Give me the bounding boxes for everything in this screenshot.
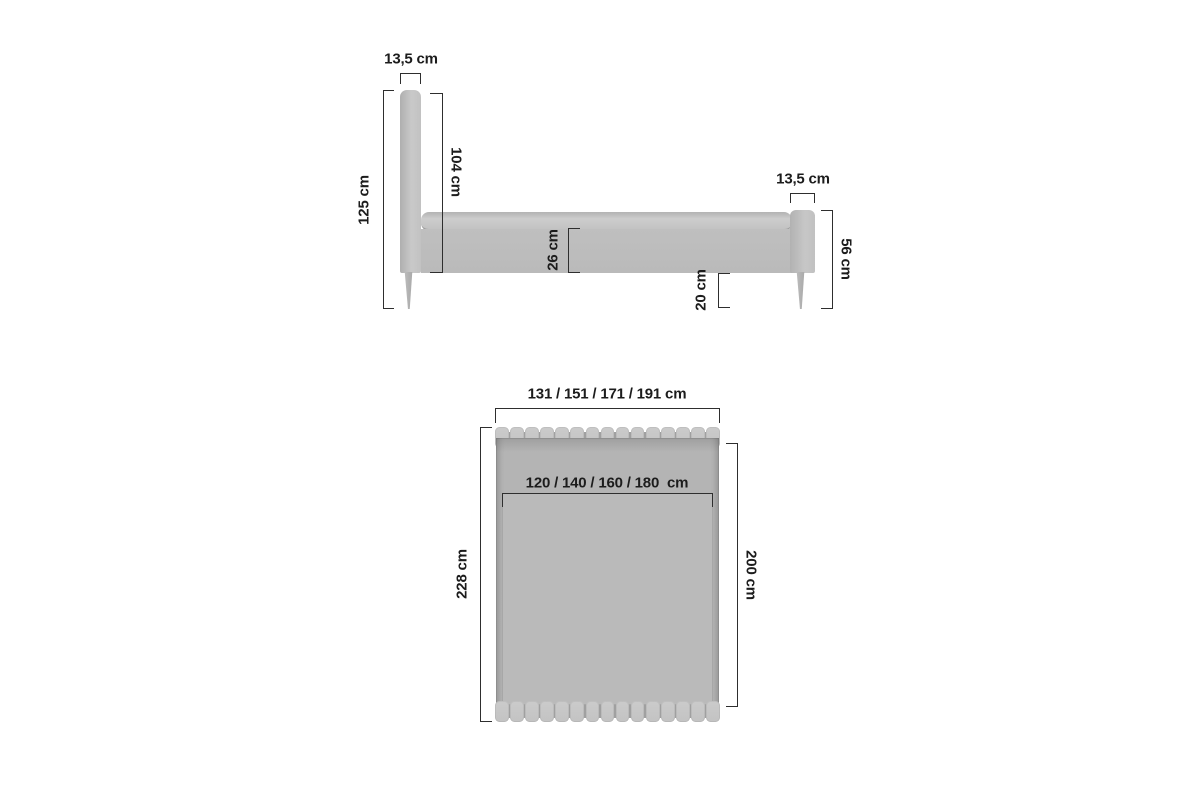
total-height-label: 125 cm — [356, 175, 373, 225]
footboard-height-label: 56 cm — [838, 238, 855, 280]
slat-pill — [676, 701, 690, 722]
total-height-bracket — [383, 90, 394, 309]
footboard-width-bracket — [790, 193, 815, 203]
slat-pill — [555, 701, 569, 722]
slat-pill — [601, 701, 615, 722]
slat-pill — [631, 701, 645, 722]
headboard-width-bracket — [400, 73, 421, 84]
clearance-bracket — [718, 273, 730, 308]
footboard-slats — [495, 701, 720, 722]
headboard-leg-shape — [404, 272, 413, 309]
footboard-leg-shape — [796, 272, 805, 309]
mattress-length-bracket — [726, 443, 738, 707]
mattress-width-label: 120 / 140 / 160 / 180 cm — [526, 475, 689, 492]
slat-pill — [540, 701, 554, 722]
mattress-plan-shape — [502, 493, 713, 705]
slat-pill — [586, 701, 600, 722]
mattress-width-bracket — [502, 493, 713, 507]
bed-dimension-diagram: 13,5 cm 125 cm 104 cm 26 cm 20 cm 13,5 c… — [0, 0, 1200, 800]
overall-length-label: 228 cm — [454, 549, 471, 599]
slat-pill — [691, 701, 705, 722]
mattress-length-label: 200 cm — [743, 550, 760, 600]
slat-pill — [495, 701, 509, 722]
overall-width-label: 131 / 151 / 171 / 191 cm — [528, 386, 687, 403]
footboard-height-bracket — [821, 210, 833, 309]
headboard-panel-height-label: 104 cm — [448, 147, 465, 197]
clearance-label: 20 cm — [693, 269, 710, 311]
slat-pill — [646, 701, 660, 722]
slat-pill — [661, 701, 675, 722]
slat-pill — [706, 701, 720, 722]
frame-height-bracket — [568, 228, 580, 273]
frame-height-label: 26 cm — [545, 229, 562, 271]
slat-pill — [510, 701, 524, 722]
overall-width-bracket — [495, 408, 720, 423]
footboard-width-label: 13,5 cm — [776, 171, 830, 188]
headboard-width-label: 13,5 cm — [384, 51, 438, 68]
slat-pill — [525, 701, 539, 722]
slat-pill — [570, 701, 584, 722]
side-rail-shape — [421, 229, 792, 273]
headboard-side-shape — [400, 90, 421, 273]
footboard-side-shape — [790, 210, 815, 273]
slat-pill — [616, 701, 630, 722]
headboard-panel-height-bracket — [430, 93, 443, 273]
overall-length-bracket — [480, 427, 492, 722]
